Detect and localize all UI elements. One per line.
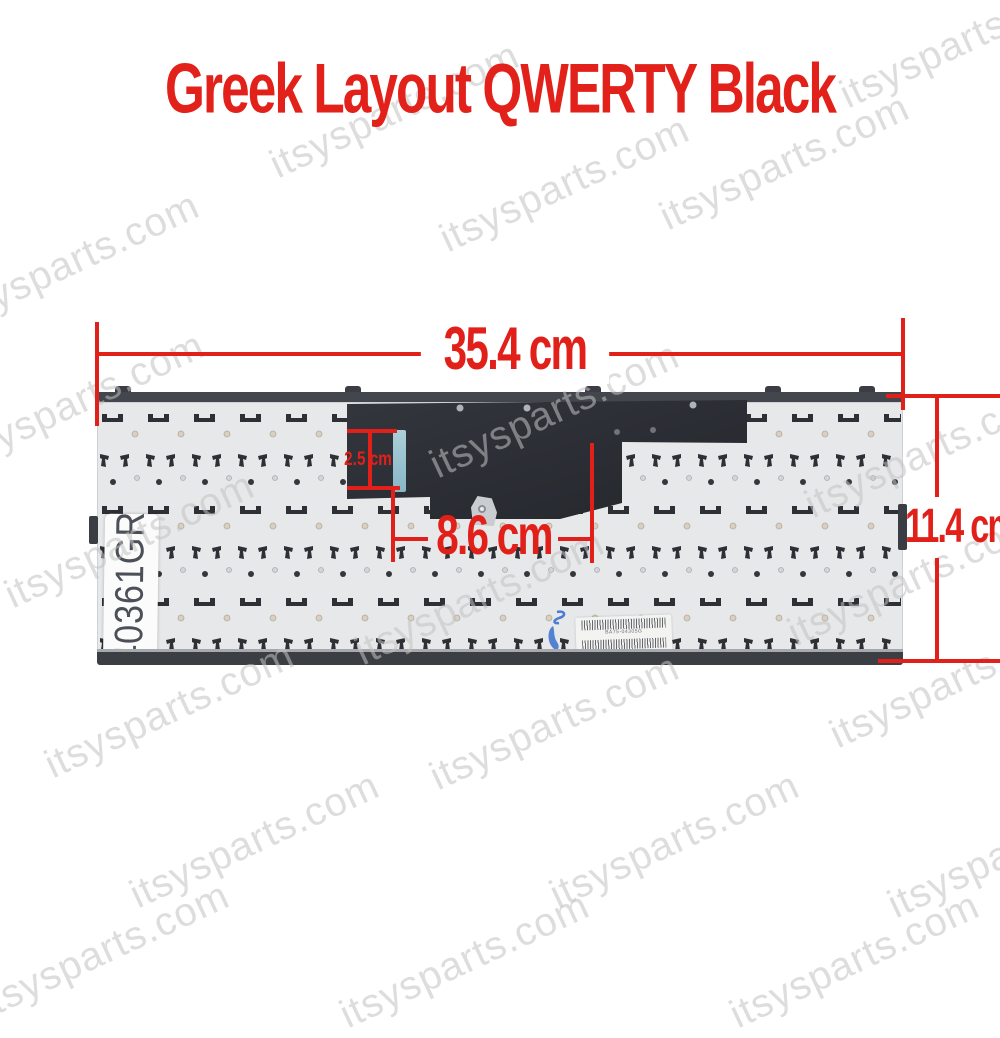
watermark-text: itsysparts.com: [423, 645, 686, 800]
watermark-text: itsysparts.com: [723, 883, 986, 1038]
side-notch: [898, 504, 907, 550]
watermark-text: itsysparts.com: [333, 883, 596, 1038]
watermark-text: itsysparts.com: [0, 873, 236, 1028]
watermark-text: itsysparts.com: [0, 183, 206, 338]
keyboard-bottom-edge: [97, 652, 903, 665]
product-image: { "title": { "text": "Greek Layout QWERT…: [0, 0, 1000, 1000]
part-number-label: 40361GR: [103, 514, 159, 661]
mylar-film: [97, 386, 903, 666]
watermark-text: itsysparts.com: [881, 773, 1000, 928]
watermark-text: itsysparts.com: [433, 107, 696, 262]
side-notch: [89, 516, 98, 544]
watermark-text: itsysparts.com: [123, 763, 386, 918]
product-title: Greek Layout QWERTY Black: [25, 49, 975, 130]
keyboard-back-photo: 40361GR BA75-04305G 3312092900135: [97, 386, 903, 666]
width-dim-line: [97, 352, 903, 356]
screw-hole: [478, 505, 486, 513]
part-number-text: 40361GR: [107, 510, 154, 663]
watermark-text: itsysparts.com: [543, 763, 806, 918]
height-dim-line-upper: [935, 396, 939, 497]
height-dim-label: 11.4 cm: [905, 500, 1000, 554]
teal-ribbon-marker: [393, 430, 406, 492]
height-dim-line-lower: [935, 558, 939, 663]
width-dim-label: 35.4 cm: [421, 315, 609, 384]
height-dim-tick-top: [886, 394, 1000, 398]
